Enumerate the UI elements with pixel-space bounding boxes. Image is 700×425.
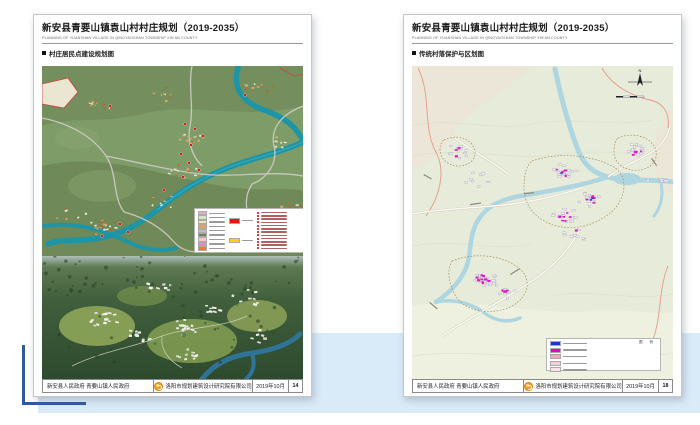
section-label: 传统村落保护与区划图 [419,48,484,58]
page-left[interactable]: 新安县青要山镇袁山村村庄规划（2019-2035） PLANNING OF YU… [33,14,312,397]
section-label: 村庄居民点建设规划图 [49,48,114,58]
page-left-header: 新安县青要山镇袁山村村庄规划（2019-2035） PLANNING OF YU… [34,15,311,58]
aerial-rendering [42,256,303,379]
government-name: 新安县人民政府 青要山镇人民政府 [413,380,523,392]
legend-column-lines [198,211,225,250]
page-number: 14 [288,380,302,392]
terrain-light [68,170,136,202]
legend-column-blocks [229,211,253,250]
company-name: 洛阳市规划建筑设计研究院有限公司 [165,382,251,390]
svg-text:N: N [639,68,642,73]
square-bullet-icon [42,51,46,55]
protection-zoning-map: N 图 例 [412,66,673,379]
date-cell: 2019年10月 [252,380,288,392]
legend-title: 图 例 [639,340,656,345]
section-header: 村庄居民点建设规划图 [42,48,303,58]
river-pool [613,173,641,185]
design-institute-cell: 洛阳市规划建筑设计研究院有限公司 [153,380,252,392]
company-name: 洛阳市规划建筑设计研究院有限公司 [535,382,621,390]
zoning-map-svg: N [412,66,673,379]
rendering-svg [42,256,303,379]
company-logo-icon [154,382,163,391]
scale-bar [616,96,644,98]
page-right[interactable]: 新安县青要山镇袁山村村庄规划（2019-2035） PLANNING OF YU… [403,14,682,397]
construction-plan-map [42,66,303,256]
page-title: 新安县青要山镇袁山村村庄规划（2019-2035） [42,20,303,34]
company-logo-icon [524,382,533,391]
map-legend: 图 例 [546,338,661,371]
page-subtitle: PLANNING OF YUANSHAN VILLAGE IN QINGYAOS… [42,36,303,44]
corner-bracket-vertical [22,345,25,405]
page-title: 新安县青要山镇袁山村村庄规划（2019-2035） [412,20,673,34]
section-header: 传统村落保护与区划图 [412,48,673,58]
map-legend [194,208,303,253]
page-right-header: 新安县青要山镇袁山村村庄规划（2019-2035） PLANNING OF YU… [404,15,681,58]
design-institute-cell: 洛阳市规划建筑设计研究院有限公司 [523,380,622,392]
page-number: 18 [658,380,672,392]
square-bullet-icon [412,51,416,55]
legend-column-projects [257,211,287,250]
government-name: 新安县人民政府 青要山镇人民政府 [43,380,153,392]
title-block-footer: 新安县人民政府 青要山镇人民政府 洛阳市规划建筑设计研究院有限公司 2019年1… [42,379,303,393]
corner-bracket-horizontal [22,402,86,405]
date-cell: 2019年10月 [622,380,658,392]
title-block-footer: 新安县人民政府 青要山镇人民政府 洛阳市规划建筑设计研究院有限公司 2019年1… [412,379,673,393]
page-subtitle: PLANNING OF YUANSHAN VILLAGE IN QINGYAOS… [412,36,673,44]
